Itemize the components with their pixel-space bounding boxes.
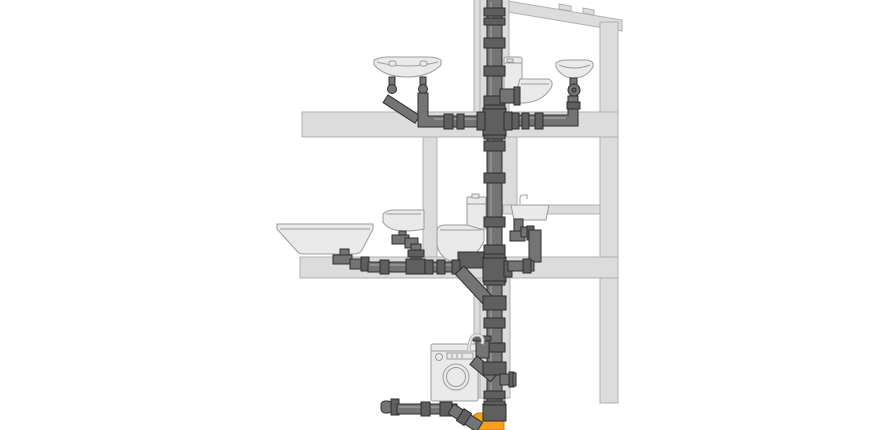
pipe-coupling (380, 260, 389, 274)
pipe-coupling (484, 318, 505, 328)
toilet-cistern (467, 197, 486, 229)
trap-cap (572, 88, 576, 92)
pipe-coupling (484, 66, 505, 76)
stack-entry-hub (483, 362, 506, 375)
basin-tailpiece (389, 77, 395, 85)
tee-collar (484, 281, 505, 285)
access-stub (500, 372, 516, 387)
tee-collar (484, 254, 505, 258)
trap-valve (419, 85, 428, 94)
tee-fitting (406, 259, 425, 274)
cleanout-cap (381, 401, 392, 413)
washing-machine (431, 344, 478, 401)
sink-basin (511, 205, 549, 220)
washbasin-bowl (556, 60, 593, 78)
bathtub-trap (333, 255, 352, 264)
pipe-coupling (484, 217, 505, 227)
drain-knob (420, 61, 427, 66)
pipe-coupling (484, 245, 505, 254)
drainage-system-diagram (0, 0, 870, 430)
pipe-coupling (484, 18, 505, 25)
pipe-coupling (522, 113, 529, 129)
washbasin-bowl (383, 210, 424, 231)
drain-knob (389, 61, 396, 66)
pipe-coupling (457, 114, 464, 129)
branch-socket (504, 112, 512, 130)
pipe-coupling (535, 113, 543, 129)
pipe-coupling (484, 173, 505, 183)
pipe-coupling (444, 114, 453, 129)
pipe-coupling (437, 260, 445, 274)
sink-drop-pipe (529, 230, 541, 262)
cistern-knob (472, 194, 479, 198)
middle-washbasin (383, 210, 424, 231)
toilet-bowl (516, 79, 553, 103)
interior-wall-middle (423, 137, 437, 257)
base-collar (484, 401, 505, 405)
middle-toilet (437, 194, 486, 261)
pipe-coupling (484, 391, 505, 399)
pipe-coupling (408, 250, 424, 257)
stub-cap (513, 373, 516, 386)
exterior-wall-right (600, 22, 618, 403)
double-washbasin (374, 57, 441, 77)
wye-hub (458, 252, 484, 268)
pipe-coupling (567, 102, 580, 109)
branch-socket (477, 112, 485, 130)
washbasin-bowl (374, 57, 441, 77)
cross-collar (484, 135, 505, 139)
basin-tailpiece (420, 77, 426, 85)
pipe-coupling (523, 259, 531, 273)
pipe-coupling (484, 8, 505, 16)
flush-button (507, 59, 513, 62)
pipe-coupling (421, 402, 430, 416)
pipe-coupling (484, 38, 505, 48)
drainage-diagram-canvas (0, 0, 870, 430)
pipe-coupling (484, 141, 505, 151)
cross-hub (483, 108, 506, 136)
upper-toilet-connector (500, 87, 520, 105)
cross-collar (484, 105, 505, 109)
faucet (520, 195, 527, 204)
stack-entry-hub (483, 296, 506, 310)
trap-valve (388, 85, 397, 94)
stack-base-hub (483, 404, 506, 421)
bathtub (277, 224, 373, 254)
tee-hub (483, 257, 506, 282)
branch-socket (514, 87, 520, 105)
small-washbasin (556, 60, 593, 78)
